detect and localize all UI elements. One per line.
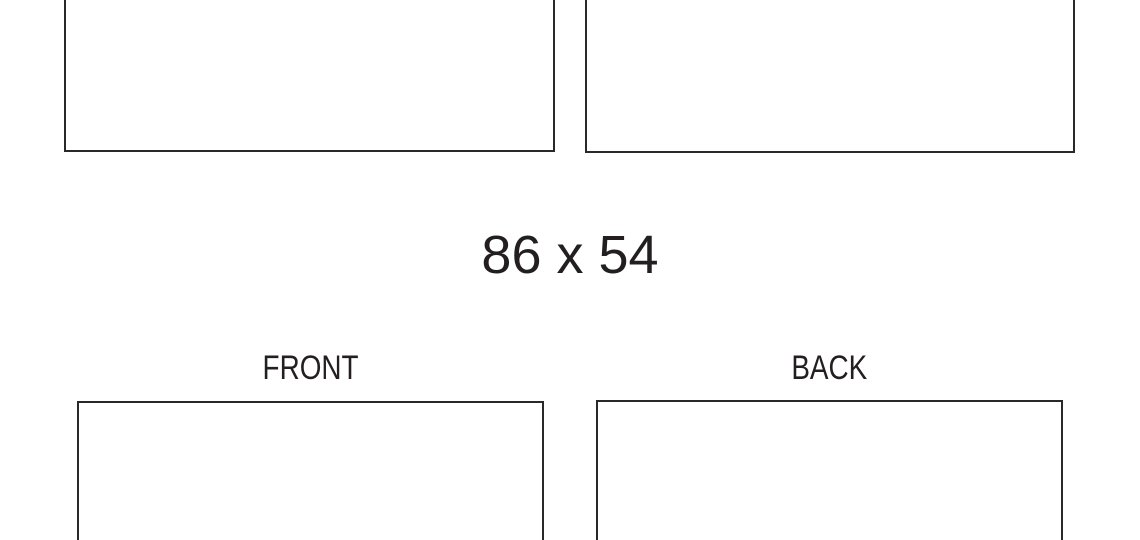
front-label-text: FRONT	[262, 351, 358, 385]
card-outline-front	[77, 401, 544, 540]
card-outline-top-right	[585, 0, 1075, 153]
front-label: FRONT	[77, 351, 544, 385]
card-outline-back	[596, 400, 1063, 540]
card-dimensions-label: 86 x 54	[0, 228, 1140, 282]
card-template-canvas: 86 x 54 FRONT BACK	[0, 0, 1140, 540]
back-label: BACK	[596, 351, 1063, 385]
back-label-text: BACK	[792, 351, 868, 385]
card-outline-top-left	[64, 0, 555, 152]
